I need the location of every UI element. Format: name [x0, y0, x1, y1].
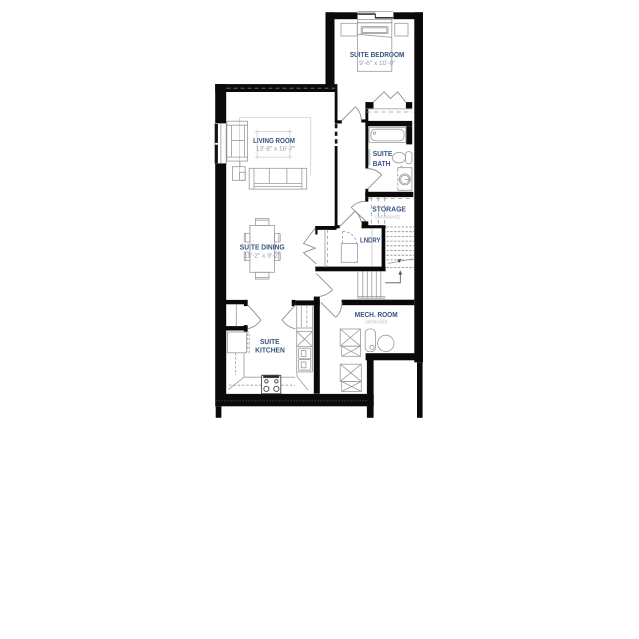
svg-text:BATH: BATH	[373, 159, 391, 168]
svg-text:13'-8" x 16'-7": 13'-8" x 16'-7"	[256, 145, 295, 152]
svg-text:STORAGE: STORAGE	[372, 205, 406, 214]
svg-text:KITCHEN: KITCHEN	[255, 345, 285, 354]
svg-text:11'-2" x 9'-2": 11'-2" x 9'-2"	[244, 252, 280, 259]
svg-text:SUITE BEDROOM: SUITE BEDROOM	[350, 50, 405, 59]
svg-text:SUITE DINING: SUITE DINING	[240, 243, 285, 252]
svg-text:LIVING ROOM: LIVING ROOM	[253, 136, 295, 145]
svg-text:9'-6" x 10'-0": 9'-6" x 10'-0"	[359, 60, 395, 67]
svg-text:SUITE: SUITE	[373, 149, 393, 158]
svg-text:MECH. ROOM: MECH. ROOM	[355, 310, 398, 319]
svg-text:LNDRY: LNDRY	[360, 236, 381, 245]
svg-text:UNFINISHED: UNFINISHED	[365, 320, 388, 325]
